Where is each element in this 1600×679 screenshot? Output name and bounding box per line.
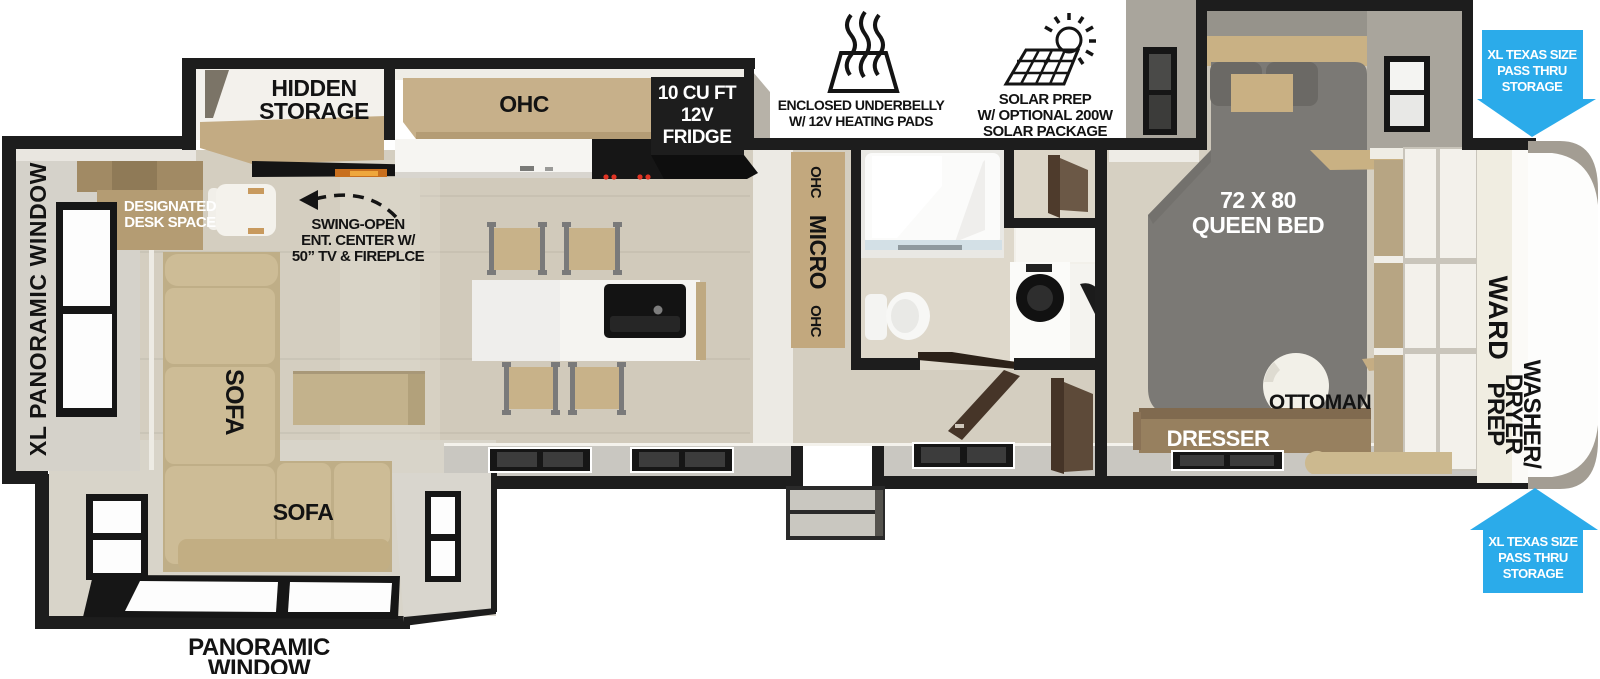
svg-text:ENT. CENTER W/: ENT. CENTER W/	[301, 232, 416, 249]
svg-text:50” TV & FIREPLCE: 50” TV & FIREPLCE	[292, 248, 425, 265]
svg-text:12V: 12V	[681, 105, 714, 126]
svg-text:STORAGE: STORAGE	[1503, 566, 1564, 581]
svg-text:PREP: PREP	[1482, 382, 1509, 446]
svg-text:OHC: OHC	[499, 91, 549, 117]
svg-text:XL TEXAS SIZE: XL TEXAS SIZE	[1488, 534, 1578, 549]
svg-text:OTTOMAN: OTTOMAN	[1269, 391, 1371, 414]
svg-text:W/ OPTIONAL 200W: W/ OPTIONAL 200W	[977, 107, 1113, 124]
svg-text:WARD: WARD	[1483, 276, 1513, 361]
svg-text:OHC: OHC	[807, 305, 824, 338]
svg-text:WINDOW: WINDOW	[208, 655, 311, 674]
svg-text:SOFA: SOFA	[273, 499, 334, 525]
svg-text:FRIDGE: FRIDGE	[663, 127, 732, 148]
svg-text:PASS THRU: PASS THRU	[1498, 550, 1568, 565]
svg-text:SOLAR PACKAGE: SOLAR PACKAGE	[983, 123, 1108, 140]
svg-text:SOLAR PREP: SOLAR PREP	[999, 91, 1092, 108]
svg-text:SWING-OPEN: SWING-OPEN	[311, 216, 404, 233]
svg-text:DESK SPACE: DESK SPACE	[124, 214, 216, 231]
svg-text:72 X 80: 72 X 80	[1220, 187, 1296, 213]
svg-text:OHC: OHC	[807, 166, 824, 199]
svg-text:10 CU FT: 10 CU FT	[658, 83, 737, 104]
svg-text:ENCLOSED UNDERBELLY: ENCLOSED UNDERBELLY	[778, 97, 946, 113]
svg-text:W/ 12V HEATING PADS: W/ 12V HEATING PADS	[789, 113, 933, 129]
svg-text:XL PANORAMIC WINDOW: XL PANORAMIC WINDOW	[25, 162, 51, 456]
svg-text:STORAGE: STORAGE	[259, 98, 369, 124]
svg-text:PASS THRU: PASS THRU	[1497, 63, 1567, 78]
svg-text:STORAGE: STORAGE	[1502, 79, 1563, 94]
svg-text:QUEEN BED: QUEEN BED	[1192, 212, 1324, 238]
svg-text:XL TEXAS SIZE: XL TEXAS SIZE	[1487, 47, 1577, 62]
svg-text:DESIGNATED: DESIGNATED	[124, 198, 217, 215]
svg-text:MICRO: MICRO	[805, 215, 831, 289]
svg-text:DRESSER: DRESSER	[1167, 426, 1270, 451]
svg-text:SOFA: SOFA	[220, 369, 248, 436]
